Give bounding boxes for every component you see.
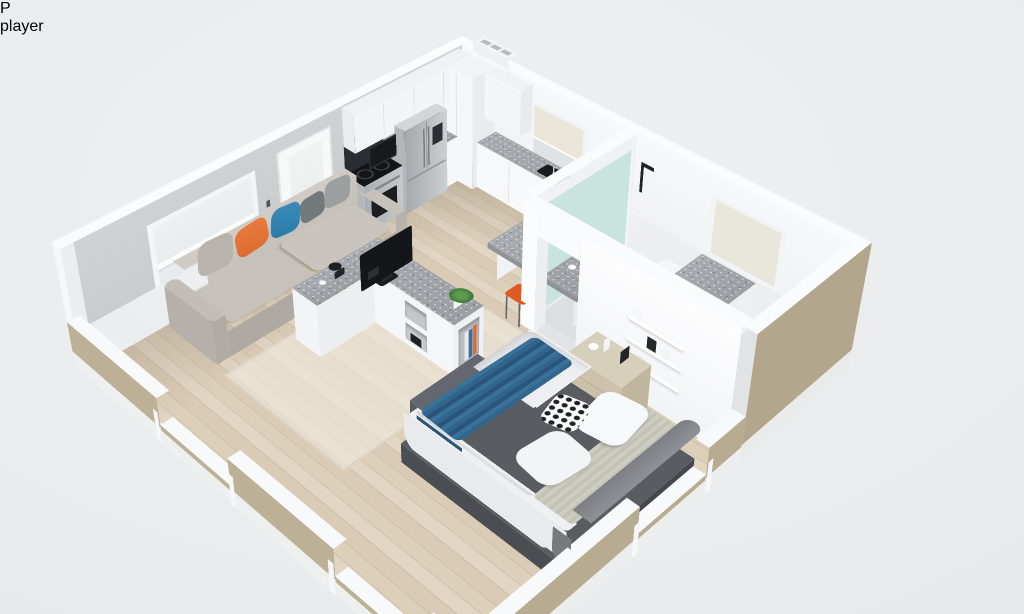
light-switch — [266, 199, 270, 207]
cabinet-door-seam — [508, 163, 510, 203]
vent-slot — [490, 44, 502, 50]
water-dispenser — [432, 122, 442, 145]
floorplan-render-stage: P player — [0, 0, 1024, 614]
vent-slot — [480, 39, 492, 45]
tv-ports — [368, 266, 379, 280]
shower-pipe — [639, 162, 644, 193]
book-spine-blue — [469, 328, 473, 358]
vent-slot — [500, 49, 512, 55]
cabinet-door-seam — [413, 86, 414, 119]
fridge-handle — [423, 128, 425, 168]
iso-viewport — [0, 0, 1024, 614]
book-spine-white — [465, 330, 469, 361]
book-spine-orange — [473, 324, 477, 356]
kitchen-window-shade — [534, 105, 584, 163]
upper-cabinet-side — [520, 85, 533, 137]
cabinet-door-seam — [443, 71, 444, 104]
fridge-handle — [428, 126, 430, 166]
speaker-box — [410, 333, 421, 349]
cabinet-door-seam — [383, 102, 385, 136]
